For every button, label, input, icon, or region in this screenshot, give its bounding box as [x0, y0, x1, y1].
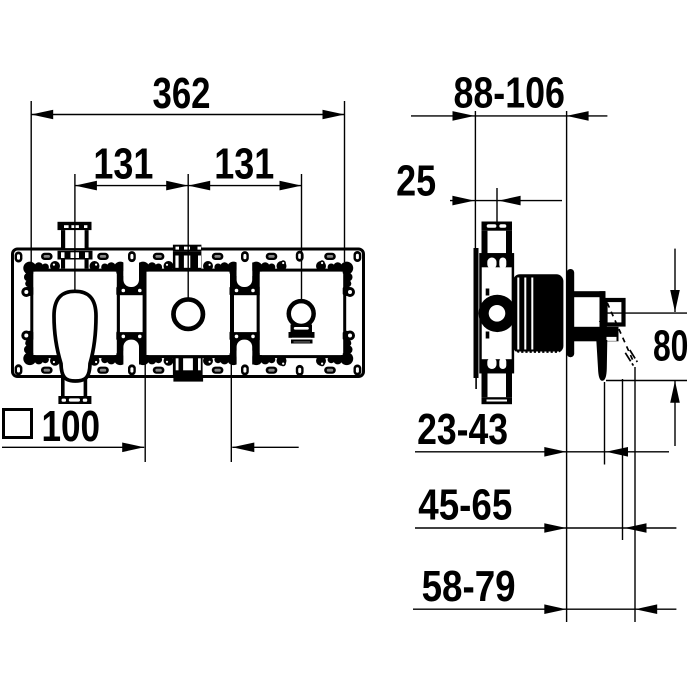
svg-text:88-106: 88-106: [453, 69, 565, 118]
svg-text:100: 100: [41, 402, 100, 451]
svg-text:45-65: 45-65: [418, 481, 512, 530]
svg-text:25: 25: [396, 157, 436, 206]
svg-text:58-79: 58-79: [422, 562, 516, 611]
svg-text:23-43: 23-43: [417, 405, 508, 454]
svg-text:131: 131: [93, 140, 153, 189]
svg-text:131: 131: [214, 140, 274, 189]
svg-text:362: 362: [153, 69, 211, 118]
svg-text:80: 80: [653, 321, 689, 370]
